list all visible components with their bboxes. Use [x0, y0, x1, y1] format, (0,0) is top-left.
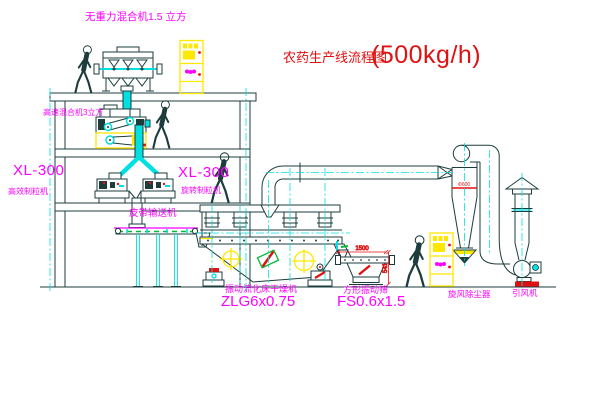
induced-draft-fan: [514, 261, 542, 287]
worker-figure-floor2: [153, 101, 169, 148]
gravity-mixer-label: 无重力混合机1.5 立方: [85, 12, 187, 23]
sieve-width-dimension: 1500: [355, 246, 369, 252]
worker-figure-ground: [407, 236, 424, 287]
belt-conveyor-label: 皮带输送机: [129, 209, 177, 219]
cyclone-separator: Φ600: [452, 145, 489, 263]
sieve-height-dimension: 541: [383, 262, 389, 273]
control-cabinet-right: [430, 233, 453, 286]
diagram-title-capacity: (500kg/h): [371, 43, 481, 68]
granulator-left: [95, 173, 129, 203]
left-granulator-model: XL-300: [13, 163, 64, 178]
sieve-model-label: FS0.6x1.5: [337, 294, 405, 309]
fan-label: 引风机: [512, 289, 538, 298]
right-granulator-name: 旋转制粒机: [181, 187, 221, 195]
fan-suction-pipe: [480, 145, 522, 276]
control-cabinet-top: [180, 41, 203, 94]
process-flow-diagram: Φ600: [0, 0, 600, 403]
cyclone-label: 旋风除尘器: [448, 290, 491, 299]
belt-conveyor: [114, 228, 210, 287]
left-granulator-name: 高效制粒机: [8, 188, 48, 196]
fluid-bed-dryer: [200, 205, 351, 286]
high-speed-mixer-label: 高速混合机3立方: [43, 109, 103, 117]
granulator-right: [141, 173, 175, 203]
dryer-model-label: ZLG6x0.75: [221, 294, 295, 309]
right-granulator-model: XL-300: [178, 165, 229, 180]
worker-figure-roof: [75, 46, 91, 93]
